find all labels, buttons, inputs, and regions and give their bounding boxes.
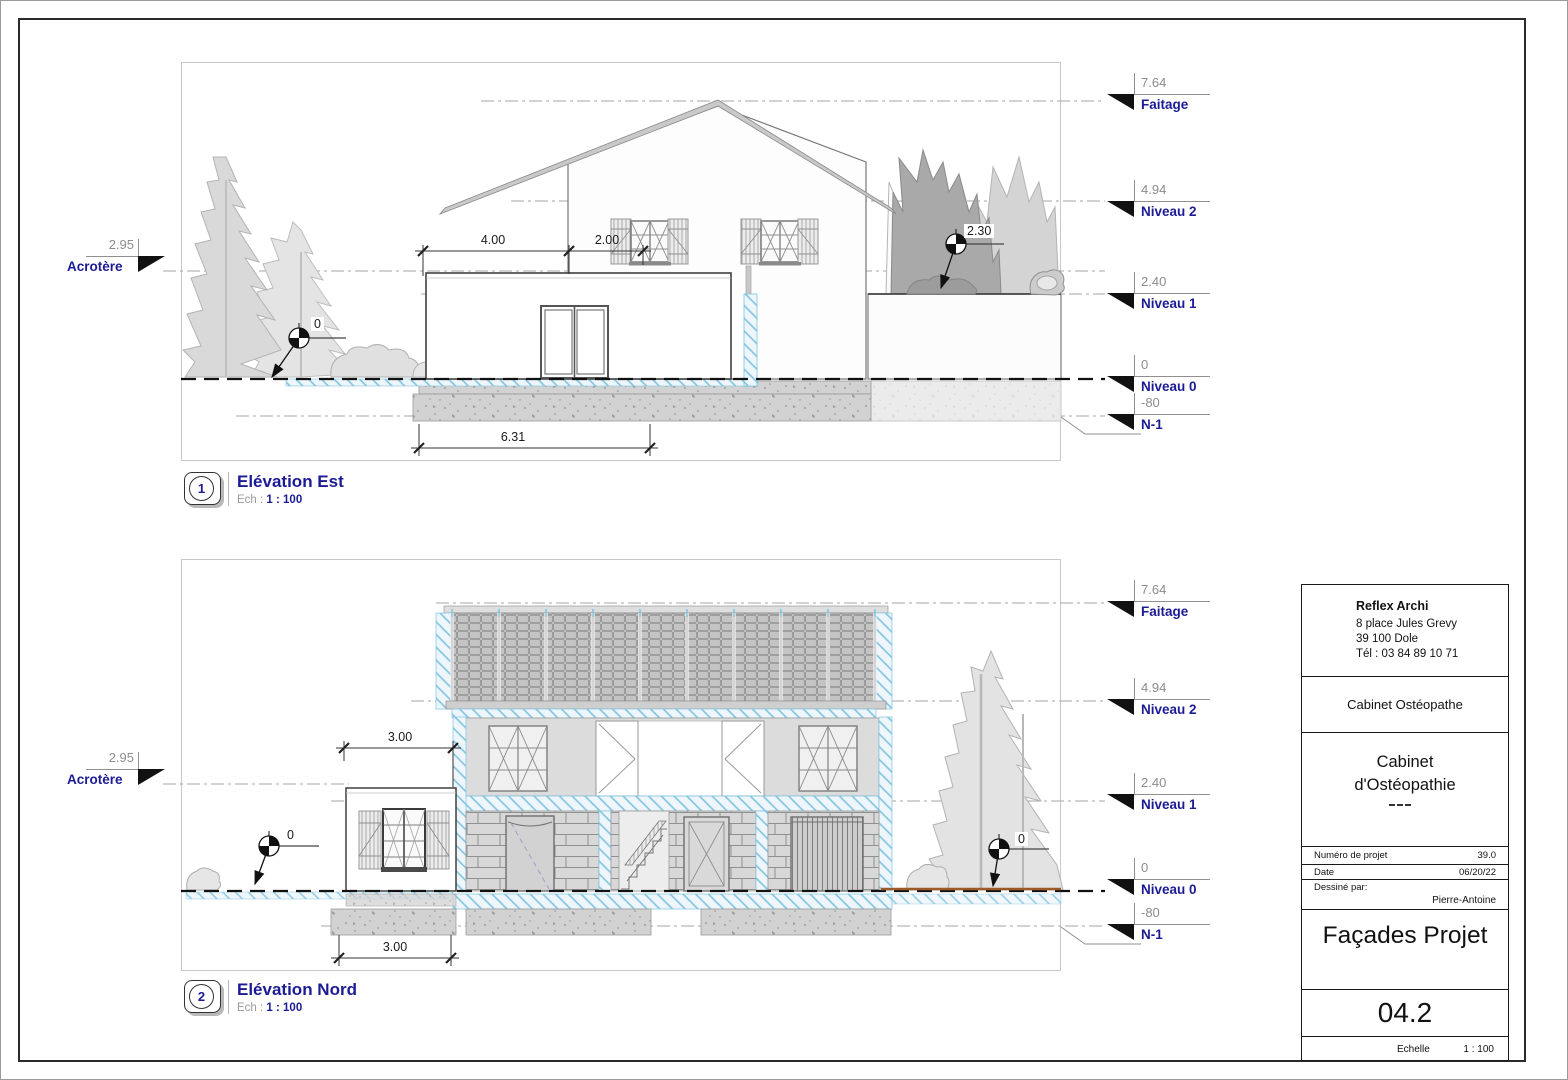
wall-edge-hatch-right <box>879 717 892 891</box>
spot-230-est: 2.30 <box>964 224 994 238</box>
date-label: Date <box>1314 867 1334 878</box>
foundation <box>413 381 1061 421</box>
title-block-project: Cabinet d'Ostéopathie <box>1302 733 1508 847</box>
french-door <box>541 306 608 378</box>
level-value: -80 <box>1141 905 1160 920</box>
level-line <box>1134 601 1210 602</box>
level-triangle-icon <box>1107 94 1134 110</box>
downspout-upper <box>746 266 751 294</box>
foundation <box>186 892 1061 935</box>
dim-631: 6.31 <box>501 430 525 444</box>
view-number-icon: 2 <box>184 980 221 1013</box>
downspout-hatch <box>744 294 757 386</box>
level-label: Faitage <box>1141 97 1188 112</box>
level-triangle-icon <box>1107 924 1134 940</box>
scale-label: Ech : <box>237 494 263 506</box>
dim-4m: 4.00 <box>481 233 505 247</box>
trees-left <box>183 157 448 377</box>
view-number-icon: 1 <box>184 472 221 505</box>
level-triangle-icon <box>1107 414 1134 430</box>
level-label: Niveau 0 <box>1141 379 1197 394</box>
sheet-title: Façades Projet <box>1323 922 1488 950</box>
elevation-nord-drawing <box>181 559 1061 971</box>
level-tick <box>1134 355 1135 376</box>
ground-floor <box>466 811 879 891</box>
level-value: 0 <box>1141 860 1148 875</box>
firm-name: Reflex Archi <box>1356 599 1508 613</box>
extension-left <box>346 788 456 891</box>
level-tick <box>1134 73 1135 94</box>
scale-label: Ech : <box>237 1002 263 1014</box>
project-name-line2: d'Ostéopathie <box>1302 774 1508 797</box>
extension-window <box>359 809 449 872</box>
level-line <box>1134 94 1210 95</box>
level-label: Acrotère <box>67 259 123 274</box>
level-line <box>1134 201 1210 202</box>
open-door-right <box>722 721 764 796</box>
view-title-2: 2 Elévation Nord Ech : 1 : 100 <box>184 980 357 1014</box>
level-value: 7.64 <box>1141 75 1166 90</box>
title-block: Reflex Archi 8 place Jules Grevy 39 100 … <box>1301 584 1509 1061</box>
scale-label: Echelle <box>1397 1044 1430 1055</box>
project-number-label: Numéro de projet <box>1314 850 1387 861</box>
level-tick <box>1134 393 1135 414</box>
window-upper-left <box>489 726 547 791</box>
level-label: Niveau 1 <box>1141 797 1197 812</box>
project-name-line1: Cabinet <box>1302 751 1508 774</box>
tree-right <box>907 651 1063 890</box>
bush-left <box>187 868 221 890</box>
spellcheck-underline <box>1389 804 1411 806</box>
dim-3m-upper: 3.00 <box>388 730 412 744</box>
scale-value: 1 : 100 <box>266 494 302 506</box>
title-block-scale: Echelle 1 : 100 <box>1302 1037 1508 1061</box>
level-triangle-icon <box>1107 699 1134 715</box>
level-value: 2.40 <box>1141 274 1166 289</box>
level-triangle-icon <box>138 256 165 272</box>
client-name: Cabinet Ostéopathe <box>1347 697 1463 712</box>
spot-zero-nord-left: 0 <box>284 828 297 842</box>
level-triangle-icon <box>1107 601 1134 617</box>
title-block-sheet-number: 04.2 <box>1302 990 1508 1037</box>
level-label: Niveau 2 <box>1141 702 1197 717</box>
view-name: Elévation Est <box>237 472 344 492</box>
firm-address-1: 8 place Jules Grevy <box>1356 617 1508 632</box>
level-tick <box>138 239 139 256</box>
scale-value: 1 : 100 <box>266 1002 302 1014</box>
level-value: 0 <box>1141 357 1148 372</box>
level-line <box>1134 794 1210 795</box>
level-tick <box>1134 272 1135 293</box>
trees-right <box>886 150 1059 294</box>
stair-door <box>684 817 729 891</box>
level-value: 2.40 <box>1141 775 1166 790</box>
scale-value: 1 : 100 <box>1463 1044 1494 1055</box>
roof <box>436 606 892 718</box>
level-triangle-icon <box>1107 293 1134 309</box>
level-line <box>1134 414 1210 415</box>
dim-2m: 2.00 <box>595 233 619 247</box>
sheet-number: 04.2 <box>1378 997 1433 1029</box>
level-label: Acrotère <box>67 772 123 787</box>
title-block-sheet-title: Façades Projet <box>1302 910 1508 990</box>
level-triangle-icon <box>1107 879 1134 895</box>
drawn-by-label: Dessiné par: <box>1314 882 1367 893</box>
garage-door <box>791 817 863 891</box>
level-line <box>86 769 138 770</box>
level-tick <box>1134 678 1135 699</box>
level-triangle-icon <box>138 769 165 785</box>
level-tick <box>1134 903 1135 924</box>
level-value: 2.95 <box>64 750 134 765</box>
spot-zero-est: 0 <box>311 317 324 331</box>
level-triangle-icon <box>1107 794 1134 810</box>
upper-floor <box>464 718 879 796</box>
elevation-est-drawing <box>181 62 1061 461</box>
level-label: Niveau 0 <box>1141 882 1197 897</box>
open-door-left <box>596 721 638 796</box>
view-name: Elévation Nord <box>237 980 357 1000</box>
level-label: Niveau 1 <box>1141 296 1197 311</box>
drawn-by-value: Pierre-Antoine <box>1432 895 1496 906</box>
title-block-firm: Reflex Archi 8 place Jules Grevy 39 100 … <box>1302 585 1508 677</box>
level-triangle-icon <box>1107 201 1134 217</box>
level-value: 2.95 <box>64 237 134 252</box>
level-tick <box>138 752 139 769</box>
staircase <box>619 811 669 891</box>
firm-address-2: 39 100 Dole <box>1356 632 1508 647</box>
level-value: 4.94 <box>1141 182 1166 197</box>
drawing-sheet: 4.00 2.00 6.31 0 2.30 3.00 3.00 0 0 7.64… <box>0 0 1568 1080</box>
entry-door <box>506 816 554 891</box>
title-block-drawn-by: Dessiné par: Pierre-Antoine <box>1302 880 1508 910</box>
view-number: 2 <box>198 989 205 1004</box>
level-line <box>1134 376 1210 377</box>
level-label: Niveau 2 <box>1141 204 1197 219</box>
extension <box>426 273 731 379</box>
floor-slab-hatch <box>464 796 879 811</box>
project-number-value: 39.0 <box>1478 850 1497 861</box>
level-tick <box>1134 580 1135 601</box>
level-value: -80 <box>1141 395 1160 410</box>
title-block-date: Date 06/20/22 <box>1302 865 1508 880</box>
view-title-1: 1 Elévation Est Ech : 1 : 100 <box>184 472 344 506</box>
level-value: 4.94 <box>1141 680 1166 695</box>
level-line <box>1134 699 1210 700</box>
window-upper-right <box>799 726 857 791</box>
title-block-client: Cabinet Ostéopathe <box>1302 677 1508 733</box>
level-label: N-1 <box>1141 927 1163 942</box>
window-upper-left <box>611 219 688 266</box>
level-line <box>1134 293 1210 294</box>
level-line <box>1134 879 1210 880</box>
firm-phone: Tél : 03 84 89 10 71 <box>1356 647 1508 662</box>
level-line <box>86 256 138 257</box>
spot-zero-nord-right: 0 <box>1015 832 1028 846</box>
window-upper-right <box>741 219 818 266</box>
level-triangle-icon <box>1107 376 1134 392</box>
level-label: N-1 <box>1141 417 1163 432</box>
level-value: 7.64 <box>1141 582 1166 597</box>
level-tick <box>1134 773 1135 794</box>
date-value: 06/20/22 <box>1459 867 1496 878</box>
title-block-project-number: Numéro de projet 39.0 <box>1302 847 1508 865</box>
level-tick <box>1134 180 1135 201</box>
level-line <box>1134 924 1210 925</box>
view-number: 1 <box>198 481 205 496</box>
level-tick <box>1134 858 1135 879</box>
level-label: Faitage <box>1141 604 1188 619</box>
dim-3m-lower: 3.00 <box>383 940 407 954</box>
